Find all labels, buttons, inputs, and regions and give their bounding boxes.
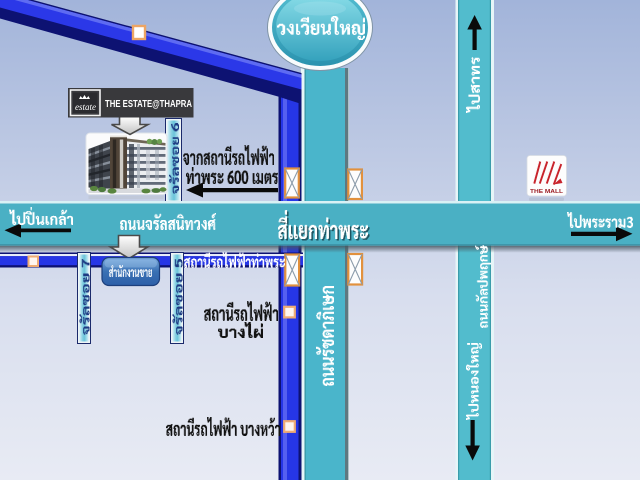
svg-text:THE ESTATE@THAPRA: THE ESTATE@THAPRA: [105, 99, 192, 110]
svg-text:THE MALL: THE MALL: [530, 189, 563, 195]
svg-text:estate: estate: [75, 102, 96, 112]
